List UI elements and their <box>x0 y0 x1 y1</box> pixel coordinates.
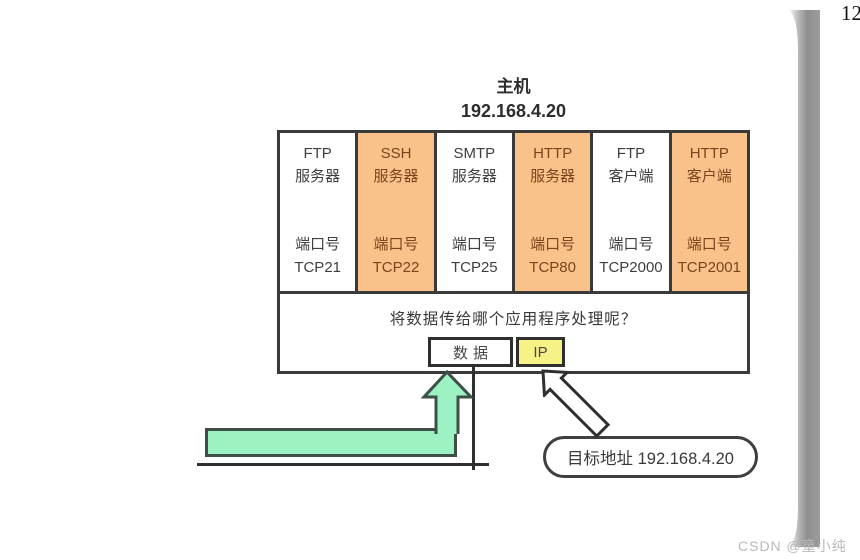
data-flow-bar <box>205 428 457 457</box>
data-box: 数据 <box>428 337 513 367</box>
service-name: FTP 服务器 <box>280 143 355 188</box>
port-column-http-client: HTTP 客户端 端口号 TCP2001 <box>672 133 747 291</box>
service-name: FTP 客户端 <box>593 143 668 188</box>
ports-columns-row: FTP 服务器 端口号 TCP21 SSH 服务器 端口号 TCP22 <box>280 133 747 294</box>
port-column-http-server: HTTP 服务器 端口号 TCP80 <box>515 133 593 291</box>
port-column-smtp-server: SMTP 服务器 端口号 TCP25 <box>437 133 515 291</box>
question-text: 将数据传给哪个应用程序处理呢？ <box>390 311 638 328</box>
packet-box: 数据 IP <box>428 337 565 367</box>
service-port: 端口号 TCP2001 <box>672 234 747 279</box>
host-ip-address: 192.168.4.20 <box>277 99 750 123</box>
host-name: 主机 <box>277 76 750 99</box>
port-column-ssh-server: SSH 服务器 端口号 TCP22 <box>358 133 436 291</box>
book-page: 12 CSDN @童小纯 主机 192.168.4.20 FTP 服务器 <box>0 0 860 560</box>
service-name: SMTP 服务器 <box>437 143 512 188</box>
baseline <box>197 463 489 466</box>
page-number: 12 <box>841 1 860 26</box>
service-port: 端口号 TCP80 <box>515 234 590 279</box>
host-title: 主机 192.168.4.20 <box>277 76 750 123</box>
service-port: 端口号 TCP21 <box>280 234 355 279</box>
service-port: 端口号 TCP2000 <box>593 234 668 279</box>
service-name: SSH 服务器 <box>358 143 433 188</box>
port-column-ftp-server: FTP 服务器 端口号 TCP21 <box>280 133 358 291</box>
service-name: HTTP 服务器 <box>515 143 590 188</box>
service-port: 端口号 TCP25 <box>437 234 512 279</box>
green-up-arrow-icon <box>421 370 475 434</box>
page-edge-bar <box>788 10 820 547</box>
service-name: HTTP 客户端 <box>672 143 747 188</box>
port-column-ftp-client: FTP 客户端 端口号 TCP2000 <box>593 133 671 291</box>
service-port: 端口号 TCP22 <box>358 234 433 279</box>
watermark: CSDN @童小纯 <box>738 536 847 556</box>
destination-address-label: 目标地址 192.168.4.20 <box>543 436 758 478</box>
